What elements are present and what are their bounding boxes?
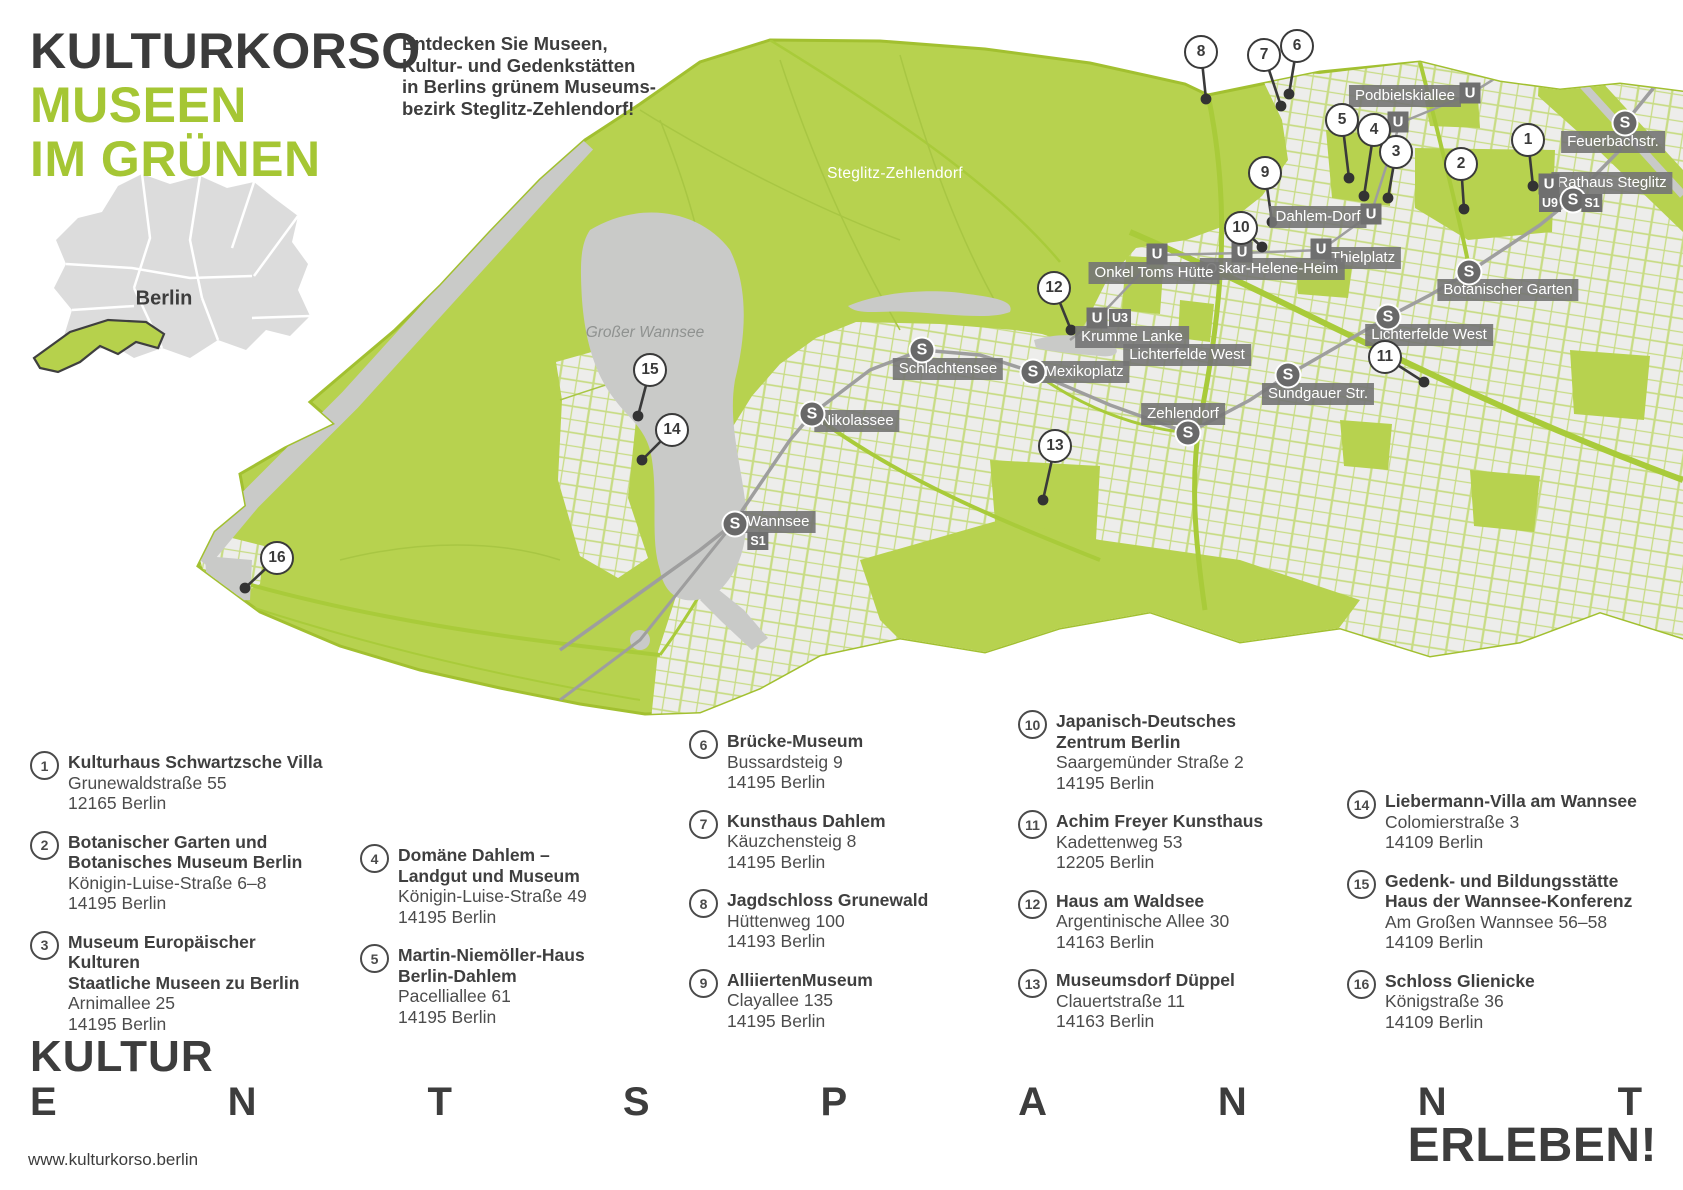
station-label: Feuerbachstr.: [1561, 131, 1665, 153]
station-label: Oskar-Helene-Heim: [1200, 258, 1345, 280]
map-marker-11: 11: [1368, 340, 1402, 374]
sbahn-icon: S: [1614, 112, 1637, 135]
station-label: Onkel Toms Hütte: [1089, 262, 1220, 284]
station-label: Nikolassee: [814, 410, 899, 432]
sbahn-icon: S: [1377, 306, 1400, 329]
station-label: Botanischer Garten: [1437, 279, 1578, 301]
sbahn-icon: S: [1277, 364, 1300, 387]
map-marker-4: 4: [1357, 113, 1391, 147]
map-marker-14: 14: [655, 413, 689, 447]
ubahn-icon: U: [1460, 83, 1481, 104]
sbahn-icon: S: [724, 513, 747, 536]
ubahn-icon: U: [1539, 174, 1560, 195]
station-label: Podbielskiallee: [1349, 85, 1461, 107]
sbahn-icon: S: [801, 403, 824, 426]
ubahn-icon: U: [1147, 244, 1168, 265]
sbahn-icon: S: [1022, 361, 1045, 384]
station-label: Sundgauer Str.: [1262, 383, 1374, 405]
ubahn-icon: U: [1311, 239, 1332, 260]
map-marker-1: 1: [1511, 123, 1545, 157]
station-label: Lichterfelde West: [1123, 344, 1251, 366]
ubahn-icon: U3: [1109, 309, 1131, 327]
sbahn-icon: S: [1458, 261, 1481, 284]
district-name-label: Steglitz-Zehlendorf: [827, 165, 963, 183]
map-marker-12: 12: [1037, 271, 1071, 305]
kulturkorso-map-poster: { "header": { "brand_line1": "KULTURKORS…: [0, 0, 1683, 1190]
map-marker-10: 10: [1224, 211, 1258, 245]
ubahn-icon: U9: [1539, 194, 1561, 212]
map-marker-2: 2: [1444, 147, 1478, 181]
sbahn-icon: S: [911, 339, 934, 362]
station-label: Mexikoplatz: [1038, 361, 1129, 383]
map-marker-7: 7: [1247, 38, 1281, 72]
sbahn-icon: S: [1177, 422, 1200, 445]
station-label: Dahlem-Dorf: [1269, 206, 1366, 228]
station-label: Schlachtensee: [893, 358, 1003, 380]
map-marker-8: 8: [1184, 35, 1218, 69]
map-marker-13: 13: [1038, 429, 1072, 463]
lake-name-label: Großer Wannsee: [586, 324, 705, 342]
map-marker-16: 16: [260, 541, 294, 575]
map-marker-6: 6: [1280, 29, 1314, 63]
ubahn-icon: U: [1361, 204, 1382, 225]
ubahn-icon: S1: [747, 532, 768, 550]
map-marker-5: 5: [1325, 103, 1359, 137]
map-marker-15: 15: [633, 353, 667, 387]
map-marker-9: 9: [1248, 156, 1282, 190]
station-label: Wannsee: [741, 511, 816, 533]
ubahn-icon: S1: [1581, 194, 1602, 212]
ubahn-icon: U: [1087, 308, 1108, 329]
